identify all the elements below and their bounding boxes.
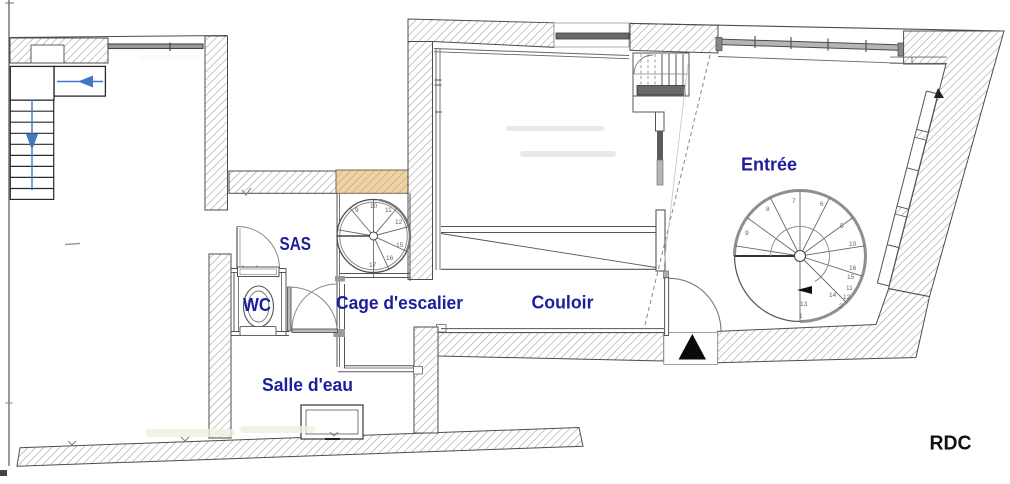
svg-text:Cage d'escalier: Cage d'escalier bbox=[336, 293, 463, 313]
svg-text:2: 2 bbox=[839, 303, 843, 310]
svg-text:11: 11 bbox=[846, 285, 853, 292]
svg-text:11: 11 bbox=[385, 207, 392, 214]
svg-text:10: 10 bbox=[849, 241, 857, 248]
svg-text:7: 7 bbox=[792, 198, 796, 205]
svg-text:16: 16 bbox=[849, 265, 857, 272]
svg-text:SAS: SAS bbox=[280, 234, 312, 254]
svg-text:8: 8 bbox=[766, 206, 770, 213]
svg-text:1: 1 bbox=[799, 313, 803, 320]
svg-text:WC: WC bbox=[243, 295, 271, 315]
svg-text:13: 13 bbox=[800, 301, 808, 308]
svg-text:15: 15 bbox=[847, 274, 855, 281]
svg-text:RDC: RDC bbox=[930, 433, 972, 455]
svg-text:6: 6 bbox=[820, 201, 824, 208]
svg-text:16: 16 bbox=[386, 255, 394, 262]
svg-text:12: 12 bbox=[395, 219, 403, 226]
svg-text:9: 9 bbox=[355, 207, 359, 214]
svg-text:12: 12 bbox=[843, 294, 851, 301]
svg-text:15: 15 bbox=[396, 242, 404, 249]
svg-text:14: 14 bbox=[829, 292, 837, 299]
svg-text:9: 9 bbox=[745, 230, 749, 237]
svg-text:Salle d'eau: Salle d'eau bbox=[262, 375, 353, 395]
svg-text:Couloir: Couloir bbox=[532, 293, 594, 313]
svg-text:5: 5 bbox=[840, 223, 844, 230]
svg-text:Entrée: Entrée bbox=[741, 155, 797, 175]
svg-text:17: 17 bbox=[369, 262, 377, 269]
svg-text:10: 10 bbox=[370, 203, 378, 210]
